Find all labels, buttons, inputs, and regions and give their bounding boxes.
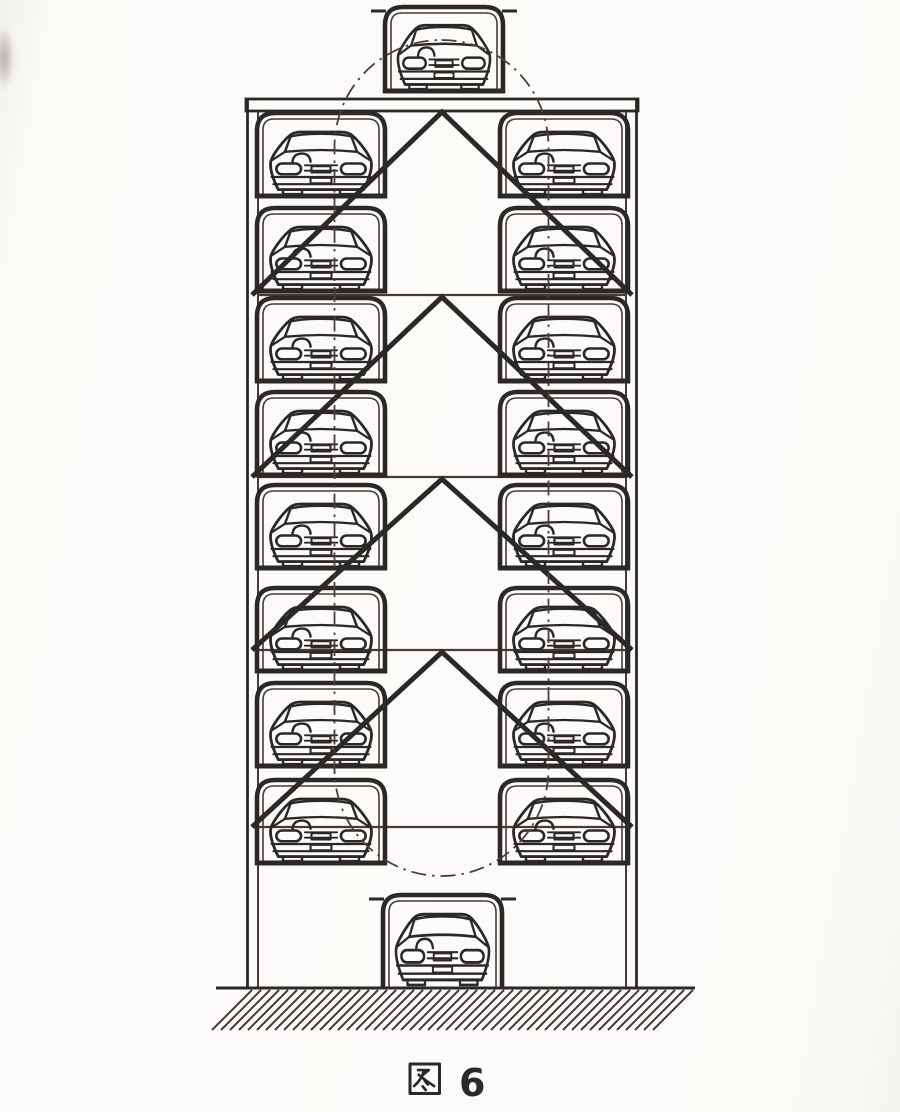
- car-headlight-right: [584, 164, 609, 175]
- car-body: [513, 504, 614, 562]
- patent-figure-page: 6: [0, 0, 900, 1112]
- car-wheel-left: [526, 760, 545, 765]
- car-windshield: [285, 506, 357, 524]
- car-grille-plate: [555, 641, 574, 647]
- car-headlight-left: [519, 639, 544, 650]
- car-license-plate: [554, 178, 575, 183]
- car-windshield: [528, 704, 600, 722]
- car-icon: [396, 914, 489, 985]
- car-grille-plate: [435, 60, 452, 66]
- car-headlight-left: [403, 58, 426, 69]
- car-headlight-right: [341, 639, 366, 650]
- car-hood-lines: [516, 152, 613, 160]
- car-hood-lines: [273, 627, 370, 635]
- car-headlight-left: [276, 639, 301, 650]
- car-body: [270, 317, 371, 375]
- car-body: [513, 132, 614, 190]
- car-headlight-right: [584, 639, 609, 650]
- car-body: [513, 411, 614, 469]
- car-license-plate: [311, 845, 332, 850]
- car-headlight-left: [276, 831, 301, 842]
- car-icon: [270, 132, 371, 194]
- ground-layer: [212, 988, 695, 1030]
- car-windshield: [528, 801, 600, 819]
- car-hood-lines: [273, 152, 370, 160]
- car-license-plate: [311, 273, 332, 278]
- car-wheel-right: [340, 760, 359, 765]
- car-headlight-left: [519, 831, 544, 842]
- car-carriers-layer: [255, 7, 630, 988]
- car-headlight-right: [341, 259, 366, 270]
- car-wheel-right: [583, 375, 602, 380]
- car-wheel-left: [526, 665, 545, 670]
- car-mirror-hump: [536, 629, 554, 637]
- brace-chevron: [252, 112, 632, 295]
- car-grille-plate: [555, 445, 574, 451]
- car-wheel-right: [583, 285, 602, 290]
- car-mirror-hump: [293, 629, 311, 637]
- car-headlight-left: [519, 349, 544, 360]
- car-wheel-right: [583, 857, 602, 862]
- car-grille-plate: [312, 641, 331, 647]
- car-hood-lines: [516, 722, 613, 730]
- car-headlight-left: [519, 259, 544, 270]
- car-headlight-left: [276, 349, 301, 360]
- car-icon: [270, 227, 371, 289]
- car-license-plate: [554, 748, 575, 753]
- car-wheel-left: [526, 857, 545, 862]
- car-mirror-hump: [293, 339, 311, 347]
- car-hood-lines: [273, 431, 370, 439]
- car-headlight-right: [461, 950, 484, 962]
- car-body: [270, 227, 371, 285]
- car-headlight-left: [401, 950, 424, 962]
- car-wheel-right: [583, 562, 602, 567]
- car-mirror-hump: [293, 154, 311, 162]
- car-wheel-right: [461, 84, 478, 89]
- car-wheel-right: [583, 469, 602, 474]
- glyph-strokes: [414, 1070, 434, 1090]
- car-hood-lines: [516, 524, 613, 532]
- car-body: [398, 25, 490, 84]
- car-headlight-right: [341, 831, 366, 842]
- car-wheel-left: [283, 665, 302, 670]
- car-body: [270, 607, 371, 665]
- car-body: [270, 132, 371, 190]
- car-wheel-left: [283, 760, 302, 765]
- car-body: [513, 607, 614, 665]
- car-hood-lines: [273, 524, 370, 532]
- car-grille-plate: [555, 261, 574, 267]
- car-headlight-left: [276, 164, 301, 175]
- car-body: [513, 317, 614, 375]
- car-icon: [270, 799, 371, 861]
- car-headlight-left: [276, 734, 301, 745]
- car-windshield: [409, 916, 476, 937]
- car-headlight-left: [519, 536, 544, 547]
- car-wheel-right: [583, 665, 602, 670]
- car-wheel-left: [283, 469, 302, 474]
- car-license-plate: [311, 178, 332, 183]
- car-grille-plate: [555, 736, 574, 742]
- car-mirror-hump: [536, 154, 554, 162]
- car-wheel-right: [340, 857, 359, 862]
- car-grille-plate: [555, 833, 574, 839]
- car-license-plate: [311, 748, 332, 753]
- ground-hatching: [212, 990, 693, 1030]
- car-mirror-hump: [536, 339, 554, 347]
- caption-character-tu-glyph: [410, 1064, 439, 1093]
- car-wheel-left: [283, 190, 302, 195]
- car-icon: [513, 799, 614, 861]
- car-hood-lines: [273, 722, 370, 730]
- car-wheel-left: [283, 375, 302, 380]
- car-license-plate: [554, 653, 575, 658]
- car-wheel-left: [408, 980, 426, 985]
- car-icon: [513, 132, 614, 194]
- car-grille-plate: [312, 166, 331, 172]
- car-grille-plate: [555, 166, 574, 172]
- car-grille-plate: [555, 538, 574, 544]
- car-license-plate: [433, 967, 452, 973]
- car-hood-lines: [516, 247, 613, 255]
- car-wheel-right: [583, 190, 602, 195]
- car-headlight-right: [341, 349, 366, 360]
- car-wheel-left: [526, 285, 545, 290]
- car-body: [396, 914, 489, 980]
- car-wheel-right: [340, 285, 359, 290]
- car-license-plate: [311, 457, 332, 462]
- car-grille-plate: [555, 351, 574, 357]
- car-headlight-right: [584, 536, 609, 547]
- car-grille-plate: [312, 261, 331, 267]
- car-mirror-hump: [416, 939, 433, 948]
- car-icon: [270, 607, 371, 669]
- car-windshield: [285, 704, 357, 722]
- car-icon: [270, 317, 371, 379]
- figure-caption: 6: [410, 1061, 485, 1105]
- car-headlight-right: [341, 164, 366, 175]
- car-windshield: [285, 319, 357, 337]
- car-windshield: [285, 134, 357, 152]
- car-windshield: [285, 413, 357, 431]
- car-icon: [513, 317, 614, 379]
- car-mirror-hump: [536, 526, 554, 534]
- car-hood-lines: [516, 337, 613, 345]
- car-hood-lines: [516, 627, 613, 635]
- car-icon: [398, 25, 490, 89]
- car-grille-plate: [312, 445, 331, 451]
- car-license-plate: [311, 550, 332, 555]
- car-license-plate: [311, 363, 332, 368]
- car-body: [513, 227, 614, 285]
- car-hood-lines: [516, 819, 613, 827]
- car-mirror-hump: [418, 47, 434, 55]
- parking-tower-figure: 6: [0, 0, 900, 1112]
- car-wheel-left: [409, 84, 426, 89]
- car-mirror-hump: [293, 724, 311, 732]
- car-headlight-left: [519, 164, 544, 175]
- car-headlight-right: [341, 443, 366, 454]
- car-headlight-right: [584, 349, 609, 360]
- car-hood-lines: [398, 937, 487, 946]
- caption-number: 6: [459, 1061, 485, 1105]
- car-hood-lines: [516, 431, 613, 439]
- car-icon: [513, 411, 614, 473]
- car-hood-lines: [273, 247, 370, 255]
- car-grille-plate: [312, 538, 331, 544]
- car-license-plate: [554, 845, 575, 850]
- car-wheel-left: [526, 469, 545, 474]
- car-windshield: [528, 319, 600, 337]
- car-hood-lines: [273, 337, 370, 345]
- car-headlight-right: [341, 536, 366, 547]
- car-wheel-right: [340, 469, 359, 474]
- car-mirror-hump: [293, 526, 311, 534]
- car-windshield: [528, 134, 600, 152]
- car-headlight-right: [584, 831, 609, 842]
- car-grille-plate: [434, 953, 452, 960]
- car-hood-lines: [273, 819, 370, 827]
- car-license-plate: [311, 653, 332, 658]
- car-grille-plate: [312, 351, 331, 357]
- car-wheel-left: [283, 562, 302, 567]
- car-wheel-right: [460, 980, 478, 985]
- car-license-plate: [554, 457, 575, 462]
- car-hood-lines: [400, 46, 488, 54]
- car-mirror-hump: [536, 724, 554, 732]
- car-body: [270, 411, 371, 469]
- car-headlight-left: [519, 443, 544, 454]
- car-headlight-right: [584, 734, 609, 745]
- car-wheel-left: [283, 857, 302, 862]
- car-license-plate: [554, 273, 575, 278]
- car-windshield: [528, 506, 600, 524]
- car-grille-plate: [312, 736, 331, 742]
- car-wheel-right: [340, 665, 359, 670]
- car-wheel-left: [283, 285, 302, 290]
- car-license-plate: [554, 363, 575, 368]
- car-wheel-right: [583, 760, 602, 765]
- car-headlight-right: [462, 58, 485, 69]
- car-icon: [513, 227, 614, 289]
- car-grille-plate: [312, 833, 331, 839]
- car-mirror-hump: [536, 433, 554, 441]
- car-mirror-hump: [536, 249, 554, 257]
- car-license-plate: [434, 72, 453, 78]
- car-headlight-left: [276, 536, 301, 547]
- car-icon: [513, 607, 614, 669]
- car-license-plate: [554, 550, 575, 555]
